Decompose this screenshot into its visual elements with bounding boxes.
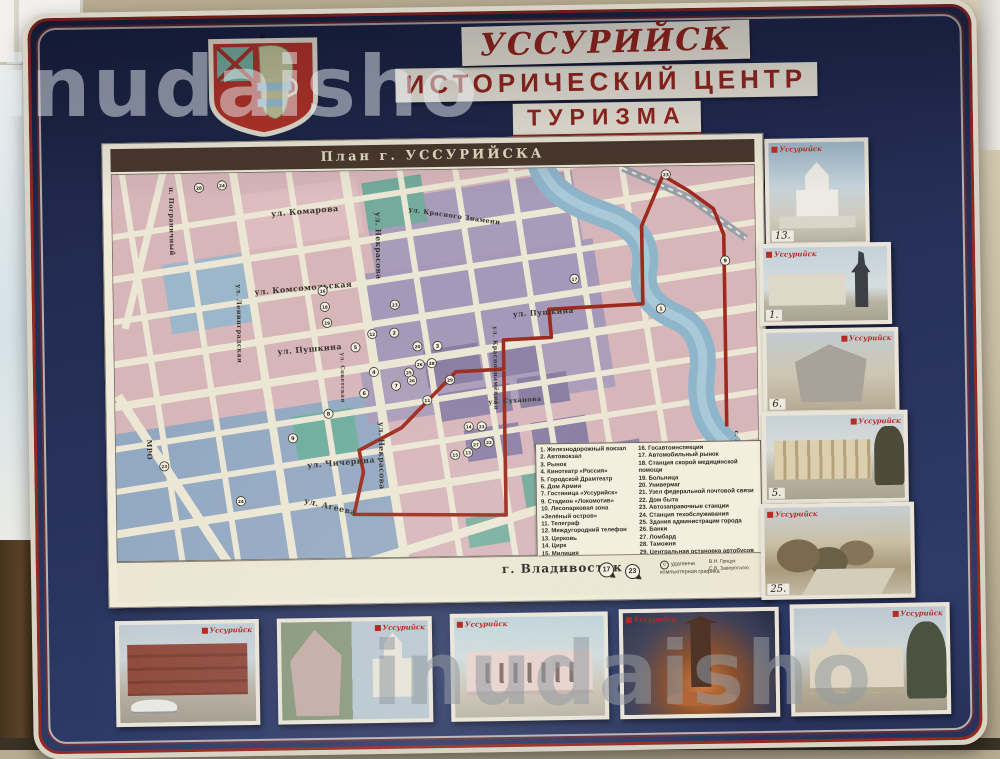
map-marker-4: 4 [369, 367, 378, 376]
svg-text:6: 6 [362, 391, 366, 397]
svg-text:26: 26 [417, 362, 423, 367]
svg-text:9: 9 [291, 436, 295, 442]
emblem-icon [841, 335, 847, 341]
svg-text:29: 29 [447, 378, 453, 383]
svg-text:26: 26 [409, 378, 415, 383]
svg-text:5: 5 [354, 345, 358, 351]
emblem-icon [771, 146, 777, 152]
map-marker-13: 13 [463, 448, 472, 457]
emblem-icon [374, 624, 380, 630]
legend-column-right: 16. Госавтоинспекция 17. Автомобильный р… [638, 444, 758, 553]
postcard-logo: Уссурийск [766, 249, 817, 259]
postcard-logo: Уссурийск [850, 416, 901, 426]
postcard-logo: Уссурийск [771, 144, 822, 154]
street-label: МРО [145, 440, 154, 460]
postcard-logo: Уссурийск [457, 619, 508, 629]
map-legend: 1. Железнодорожный вокзал 2. Автовокзал … [535, 440, 763, 558]
postcard-pink-house: Уссурийск [450, 611, 610, 721]
legend-column-left: 1. Железнодорожный вокзал 2. Автовокзал … [540, 446, 640, 555]
postcard-number: 25. [767, 584, 789, 595]
svg-text:27: 27 [473, 442, 479, 447]
svg-text:25: 25 [406, 370, 412, 375]
postcard-brick-museum: Уссурийск [115, 619, 261, 727]
legend-item: 12. Междугородний телефон [541, 527, 639, 536]
map-marker-20: 20 [413, 342, 422, 351]
board-title: УССУРИЙСК ИСТОРИЧЕСКИЙ ЦЕНТР ТУРИЗМА [345, 19, 867, 141]
postcard-number: 13. [772, 230, 794, 241]
svg-text:23: 23 [663, 172, 669, 177]
svg-text:12: 12 [369, 332, 375, 337]
svg-text:22: 22 [486, 440, 492, 445]
svg-text:17: 17 [571, 277, 577, 282]
street-label: ул. Некрасова [377, 422, 387, 490]
street-label: ул. Некрасова [373, 212, 383, 280]
night-monument-photo [623, 611, 777, 715]
gabled-building-photo [794, 606, 948, 712]
svg-text:18: 18 [322, 305, 328, 310]
map-marker-23: 23 [390, 300, 399, 309]
street-label: ул. Ленинградская [234, 284, 243, 363]
map-marker-5: 5 [351, 343, 360, 352]
emblem-icon [850, 418, 856, 424]
postcard-lenin-monument: Уссурийск 1. [759, 242, 892, 326]
pink-house-photo [454, 615, 606, 717]
postcard-memorial-and-church: Уссурийск [277, 616, 434, 724]
svg-text:16: 16 [320, 289, 326, 294]
postcard-stone-monument: Уссурийск 6. [762, 327, 899, 415]
svg-text:11: 11 [424, 398, 430, 403]
map-marker-17: 17 [570, 274, 579, 283]
svg-text:24: 24 [219, 183, 225, 188]
marker-arrow-icon [610, 572, 618, 580]
map-marker-11: 11 [423, 396, 432, 405]
map-marker-24: 24 [217, 181, 226, 190]
map-marker-12: 12 [368, 329, 377, 338]
map-marker-24: 24 [236, 496, 245, 505]
map-credits: В.Н. Грицук С.В. Заворотного [709, 558, 749, 572]
title-line-tourism: ТУРИЗМА [513, 101, 701, 139]
postcard-logo: Уссурийск [201, 625, 252, 635]
postcard-gabled-building: Уссурийск [790, 602, 952, 716]
svg-text:28: 28 [196, 186, 202, 191]
map-marker-6: 6 [360, 389, 369, 398]
legend-item: 10. Лесопарковая зона «Зелёный остров» [541, 505, 639, 521]
postcard-park: Уссурийск 25. [760, 502, 915, 600]
street-label: п. Пограничный [167, 187, 176, 256]
map-marker-9: 9 [720, 256, 729, 265]
svg-text:19: 19 [324, 321, 330, 326]
map-marker-15: 15 [451, 450, 460, 459]
svg-text:28: 28 [429, 361, 435, 366]
building-photo [766, 414, 905, 500]
map-marker-9: 9 [288, 434, 297, 443]
copyright-text: удалянчи [671, 561, 695, 567]
map-marker-26: 26 [407, 376, 416, 385]
map-marker-23: 23 [160, 462, 169, 471]
map-marker-18: 18 [320, 302, 329, 311]
map-marker-29: 29 [445, 375, 454, 384]
postcard-logo: Уссурийск [626, 614, 677, 624]
emblem-icon [626, 617, 632, 623]
svg-text:21: 21 [479, 424, 485, 429]
map-marker-2: 2 [390, 328, 399, 337]
svg-text:13: 13 [465, 450, 471, 455]
map-marker-14: 14 [464, 422, 473, 431]
map-marker-21: 21 [477, 422, 486, 431]
ussuriysk-coat-of-arms [205, 34, 323, 138]
marker-arrow-icon [636, 574, 644, 582]
memorial-church-photo [281, 620, 430, 720]
emblem-icon [766, 251, 772, 257]
svg-text:7: 7 [394, 383, 398, 389]
postcard-church: Уссурийск 13. [764, 137, 870, 247]
svg-text:8: 8 [327, 412, 331, 418]
map-marker-22: 22 [484, 438, 493, 447]
brick-building-photo [119, 623, 257, 723]
emblem-icon [892, 610, 898, 616]
postcard-logo: Уссурийск [841, 333, 892, 343]
postcard-number: 5. [769, 488, 785, 499]
copyright-icon: c [660, 560, 669, 569]
map-marker-28: 28 [427, 358, 436, 367]
svg-text:1: 1 [659, 306, 663, 312]
svg-text:3: 3 [436, 344, 440, 350]
church-photo [768, 141, 866, 242]
svg-text:2: 2 [392, 330, 396, 336]
title-city: УССУРИЙСК [461, 20, 750, 67]
svg-text:20: 20 [415, 344, 421, 349]
map-marker-7: 7 [391, 381, 400, 390]
emblem-icon [457, 621, 463, 627]
postcard-number: 6. [769, 399, 785, 410]
map-marker-19: 19 [322, 318, 331, 327]
svg-text:9: 9 [723, 258, 727, 264]
svg-text:15: 15 [452, 453, 458, 458]
map-marker-26: 26 [415, 360, 424, 369]
postcard-logo: Уссурийск [767, 509, 818, 519]
emblem-icon [767, 511, 773, 517]
credit-author-2: С.В. Заворотного [709, 565, 749, 572]
postcard-logo: Уссурийск [374, 622, 425, 632]
svg-text:23: 23 [161, 464, 167, 469]
map-marker-16: 16 [318, 286, 327, 295]
park-photo [764, 506, 911, 596]
svg-text:24: 24 [238, 499, 244, 504]
map-marker-1: 1 [656, 304, 665, 313]
postcard-classic-building: Уссурийск 5. [762, 410, 909, 504]
postcard-number: 1. [766, 310, 782, 321]
stone-photo [766, 331, 895, 411]
map-marker-27: 27 [471, 440, 480, 449]
map-marker-8: 8 [324, 409, 333, 418]
postcard-logo: Уссурийск [892, 608, 943, 618]
postcard-night-monument: Уссурийск [619, 607, 781, 719]
title-line-historic-center: ИСТОРИЧЕСКИЙ ЦЕНТР [395, 62, 817, 103]
city-map-panel: План г. УССУРИЙСКА г. Хабаровск, Арсенье… [101, 133, 770, 608]
tourist-map-board: УССУРИЙСК ИСТОРИЧЕСКИЙ ЦЕНТР ТУРИЗМА Пла… [22, 0, 988, 759]
map-marker-3: 3 [433, 341, 442, 350]
map-marker-23: 23 [661, 170, 670, 179]
emblem-icon [201, 627, 207, 633]
svg-text:14: 14 [466, 424, 472, 429]
street-label: ул. Советская [339, 353, 346, 403]
map-marker-28: 28 [194, 183, 203, 192]
svg-text:4: 4 [372, 370, 376, 376]
window-right-edge [980, 0, 1000, 150]
svg-text:23: 23 [392, 302, 398, 307]
